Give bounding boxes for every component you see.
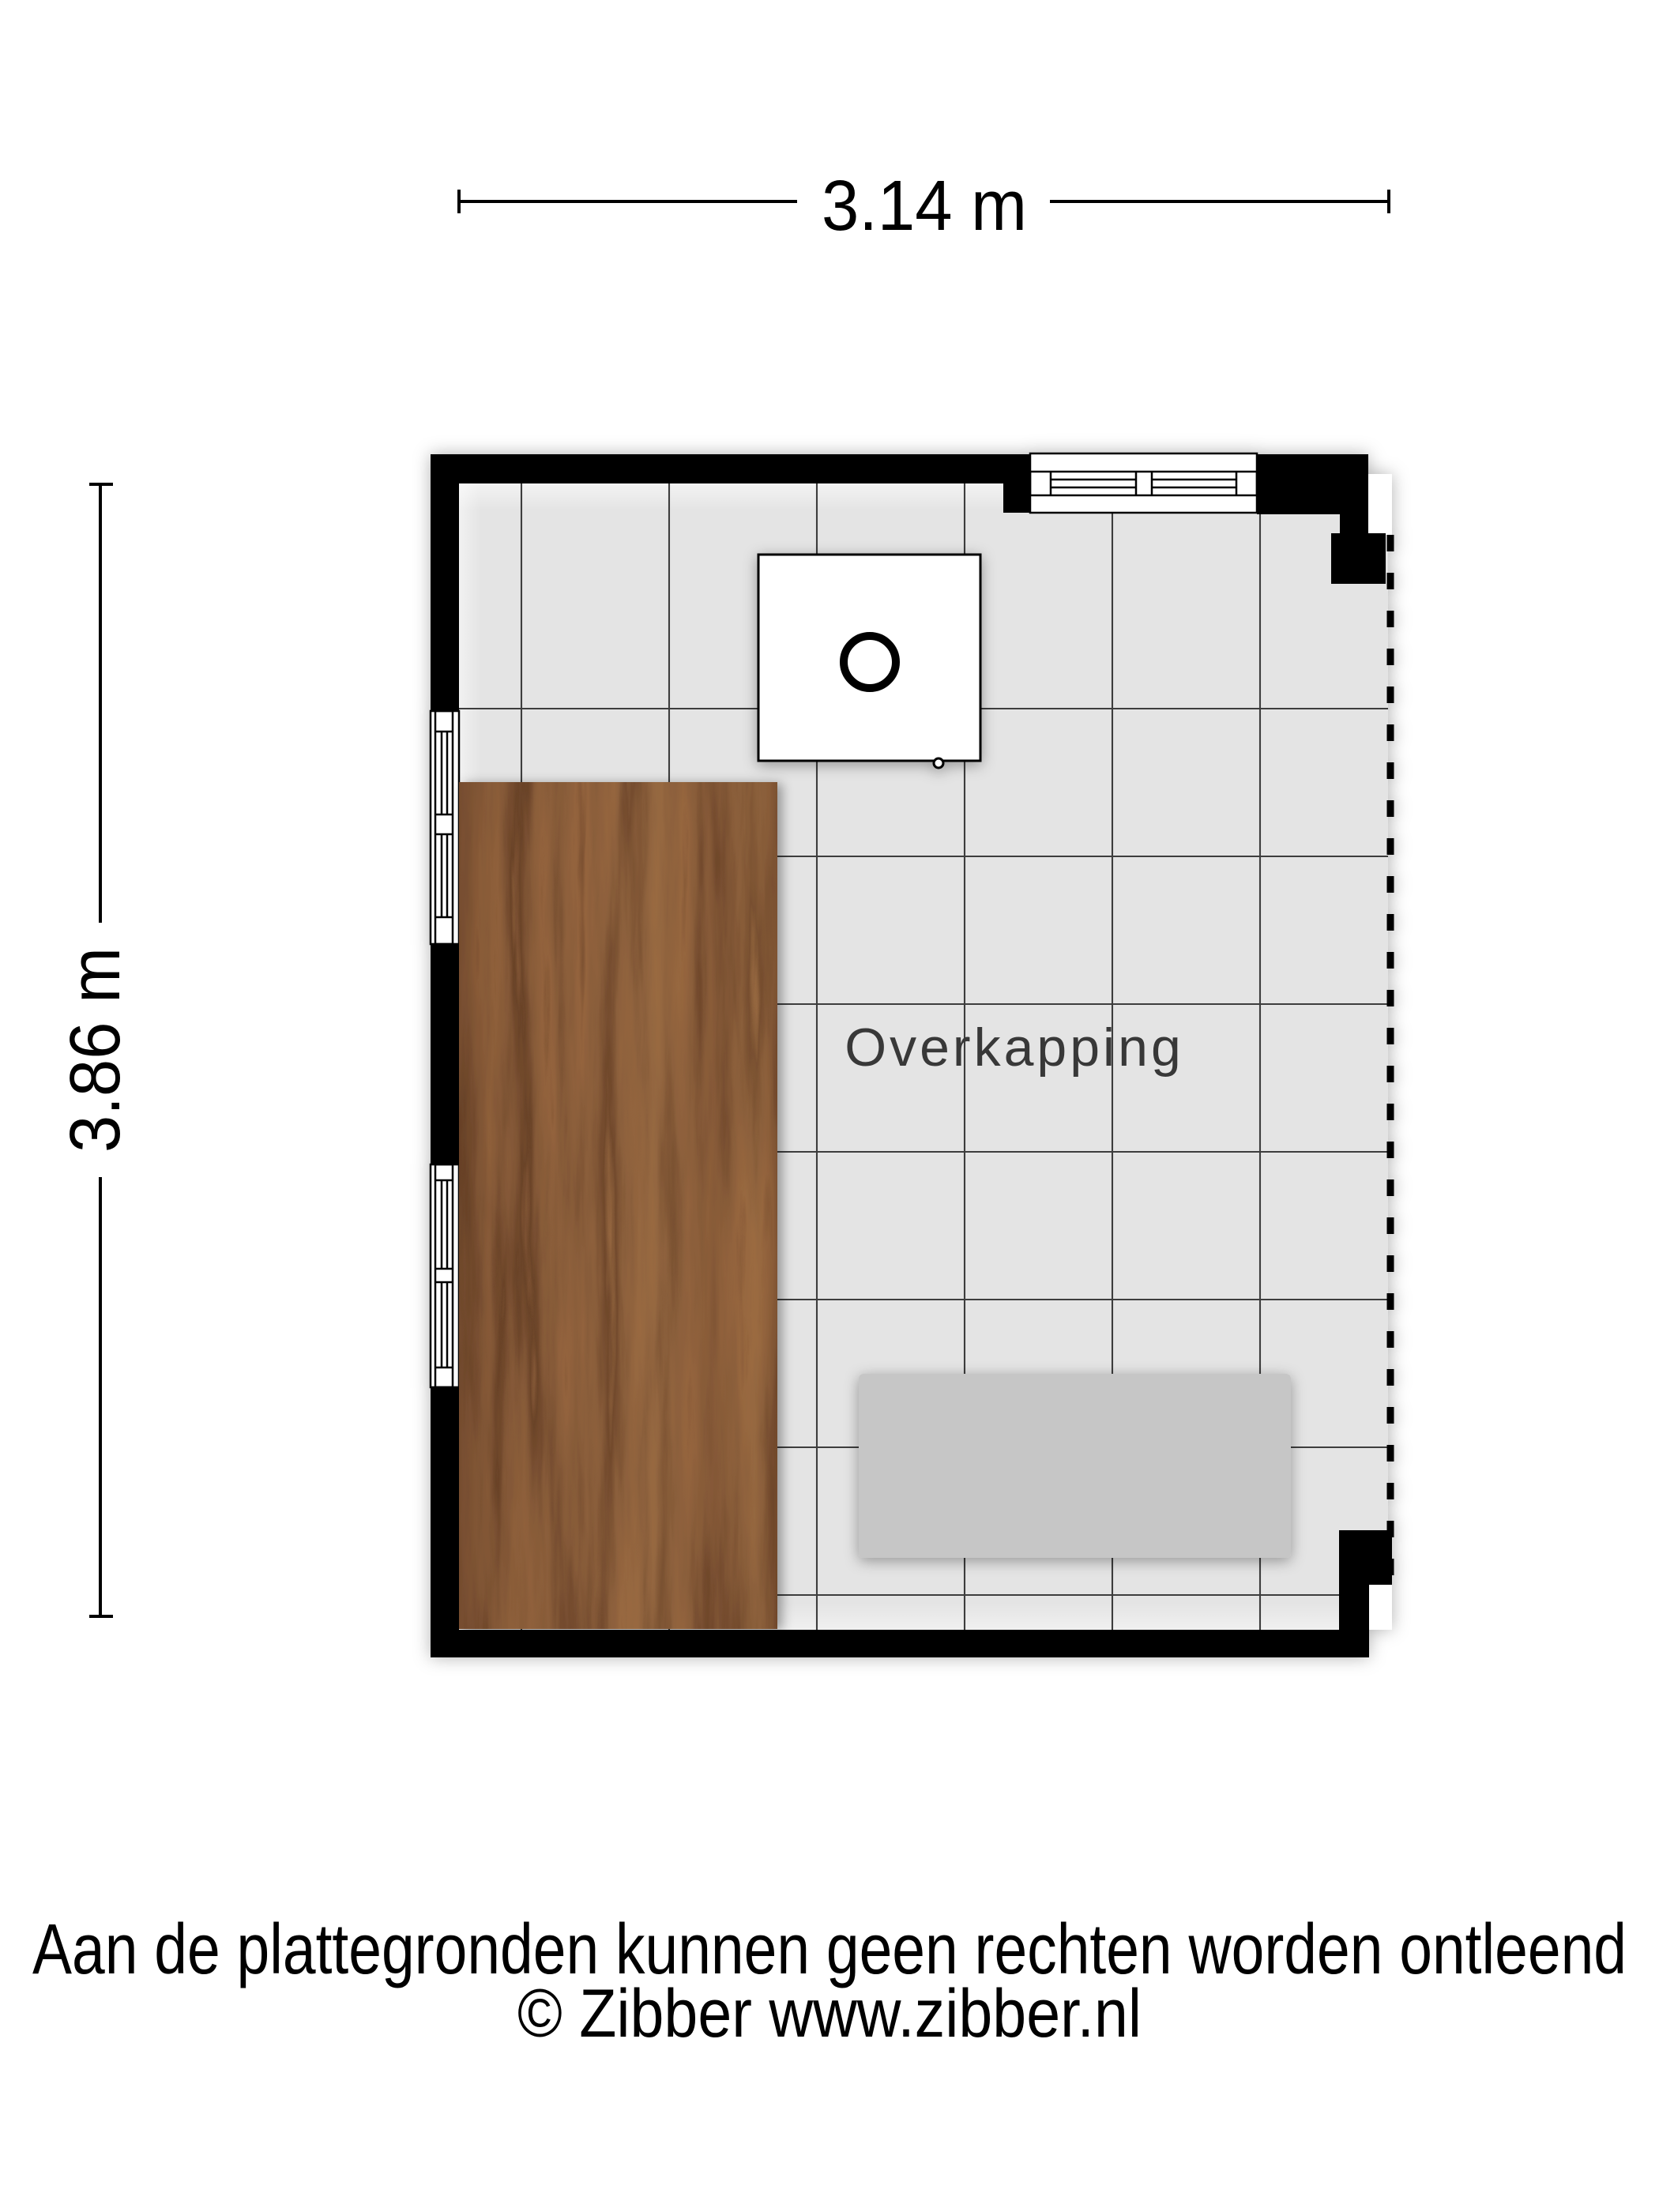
svg-text:3.86 m: 3.86 m (56, 947, 135, 1153)
svg-text:© Zibber www.zibber.nl: © Zibber www.zibber.nl (517, 1976, 1142, 2052)
svg-text:Overkapping: Overkapping (845, 1018, 1184, 1078)
svg-text:3.14 m: 3.14 m (822, 167, 1027, 246)
